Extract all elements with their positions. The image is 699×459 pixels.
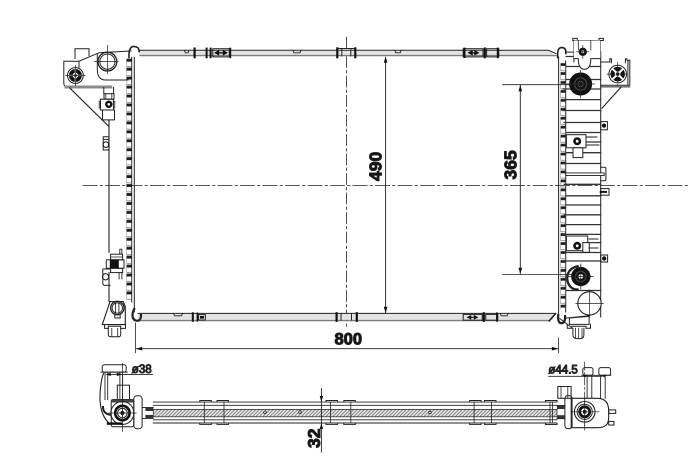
svg-text:365: 365 (501, 150, 521, 179)
svg-text:ø44.5: ø44.5 (548, 365, 577, 377)
svg-text:32: 32 (304, 428, 324, 448)
svg-text:ø38: ø38 (132, 364, 152, 376)
svg-text:490: 490 (366, 152, 386, 181)
svg-text:800: 800 (335, 331, 363, 349)
